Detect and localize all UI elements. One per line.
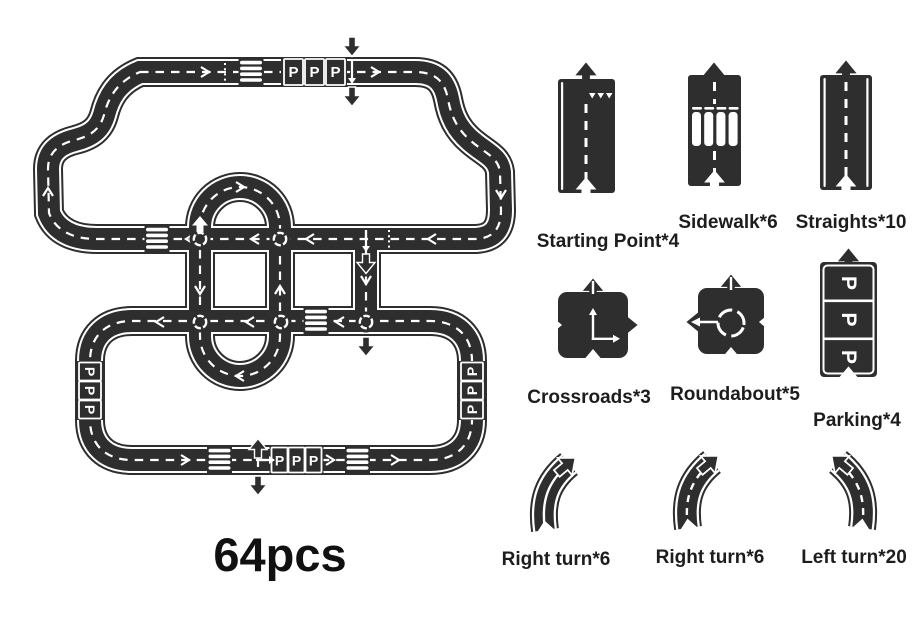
crosswalk (239, 58, 264, 87)
parking-letter: P (82, 386, 98, 395)
parking-strip-left: P P P (76, 361, 104, 420)
sidewalk-piece (672, 52, 756, 196)
roundabout-piece (678, 268, 775, 365)
label-straights: Straights*10 (788, 212, 914, 234)
parking-letter: P (288, 64, 298, 81)
straight-piece (806, 50, 886, 198)
label-crossroads: Crossroads*3 (524, 387, 654, 409)
parking-piece: P P P (806, 238, 890, 392)
label-parking: Parking*4 (802, 410, 912, 432)
parking-letter: P (275, 453, 284, 469)
parking-letter: P (292, 453, 301, 469)
parking-letter: P (309, 64, 319, 81)
parking-letter: P (464, 367, 480, 376)
parking-letter: P (837, 276, 860, 290)
parking-letter: P (464, 405, 480, 414)
starting-point-piece (540, 48, 632, 200)
crosswalk (207, 446, 232, 475)
crosswalk (145, 225, 170, 254)
parking-letter: P (309, 453, 318, 469)
connector-tab (357, 337, 375, 357)
roundabout-marker (356, 312, 377, 333)
roundabout-marker (190, 312, 211, 333)
parking-letter: P (837, 350, 860, 364)
parking-letter: P (82, 405, 98, 414)
label-left-turn: Left turn*20 (790, 547, 914, 569)
roundabout-marker (270, 229, 291, 250)
crossroads-piece (542, 270, 650, 368)
parking-letter: P (837, 312, 860, 326)
start-grid-triangles (589, 93, 613, 99)
track-layout: P P P P P P P P P P P (0, 0, 520, 500)
track-roads (48, 72, 501, 460)
pieces-count: 64pcs (205, 527, 355, 582)
label-right-turn-1: Right turn*6 (494, 549, 618, 571)
crosswalk-markers (145, 58, 371, 475)
piece-seams (225, 63, 389, 248)
label-right-turn-2: Right turn*6 (648, 547, 772, 569)
parking-letter: P (464, 386, 480, 395)
right-turn-dashed-piece (648, 438, 758, 533)
label-sidewalk: Sidewalk*6 (666, 212, 790, 234)
parking-letter: P (330, 64, 340, 81)
label-roundabout: Roundabout*5 (662, 384, 808, 406)
crosswalk (345, 446, 370, 475)
parking-strip-right: P P P (457, 361, 486, 420)
crosswalk (304, 307, 329, 336)
roundabout-marker (271, 312, 292, 333)
label-starting-point: Starting Point*4 (528, 231, 688, 253)
parking-strip-top: P P P (281, 58, 347, 87)
parking-letter: P (82, 367, 98, 376)
product-image: P P P P P P P P P P P (0, 0, 914, 643)
parking-strip-bottom: P P P (270, 446, 324, 474)
left-turn-piece (792, 438, 902, 533)
right-turn-solid-piece (505, 440, 615, 535)
